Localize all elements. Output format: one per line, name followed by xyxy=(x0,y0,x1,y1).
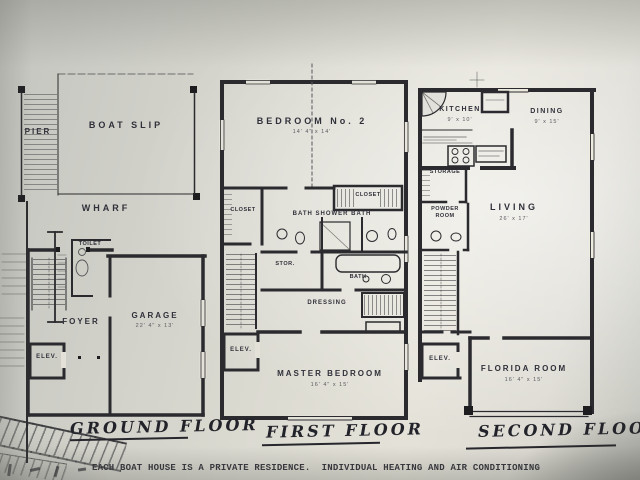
room-label-garage: GARAGE xyxy=(112,311,198,320)
room-dim-kitchen: 9' x 10' xyxy=(424,117,496,123)
room-label-toilet: TOILET xyxy=(68,241,112,247)
second-stairs-hatch xyxy=(424,255,456,331)
ground-stairs-hatch xyxy=(33,259,65,309)
room-label-master-bedroom: MASTER BEDROOM xyxy=(252,369,408,378)
pier-hatch xyxy=(24,94,57,194)
first-stairs-hatch xyxy=(226,254,255,328)
photo-caption: EACH BOAT HOUSE IS A PRIVATE RESIDENCE. … xyxy=(92,463,540,473)
ground-floor-title: GROUND FLOOR xyxy=(70,415,259,438)
first-closet-louver-hatch xyxy=(224,194,232,238)
room-label-dining: DINING xyxy=(516,108,578,115)
floorplan-linework xyxy=(0,0,640,480)
first-floor-title: FIRST FLOOR xyxy=(266,419,424,441)
room-label-powder-room: POWDER ROOM xyxy=(425,206,465,220)
room-label-bath-shower-bath: BATH SHOWER BATH xyxy=(258,211,406,217)
room-label-bath: BATH xyxy=(336,274,380,280)
floor-plan-photo: PIER BOAT SLIP WHARF TOILET FOYER GARAGE… xyxy=(0,0,640,480)
room-label-foyer: FOYER xyxy=(50,317,112,326)
room-dim-dining: 9' x 15' xyxy=(516,119,578,125)
room-label-pier: PIER xyxy=(18,127,58,136)
room-label-stor: STOR. xyxy=(264,261,306,267)
first-wardrobe-hatch xyxy=(364,295,402,315)
room-label-closet-middle: CLOSET xyxy=(336,192,400,198)
room-label-elevator-ground: ELEV. xyxy=(30,354,64,360)
room-label-bedroom2: BEDROOM No. 2 xyxy=(248,116,376,126)
room-label-living: LIVING xyxy=(478,202,550,212)
room-label-wharf: WHARF xyxy=(60,203,152,213)
room-label-florida-room: FLORIDA ROOM xyxy=(468,364,580,373)
room-dim-garage: 22' 4" x 13' xyxy=(112,323,198,329)
room-label-dressing: DRESSING xyxy=(286,300,368,306)
room-label-storage-second: STORAGE xyxy=(424,169,466,175)
room-dim-master-bedroom: 16' 4" x 15' xyxy=(252,382,408,388)
room-dim-living: 26' x 17' xyxy=(478,216,550,222)
room-label-elevator-second: ELEV. xyxy=(422,356,458,362)
room-dim-bedroom2: 14' 4" x 14' xyxy=(248,129,376,135)
room-label-elevator-first: ELEV. xyxy=(224,347,258,353)
room-label-kitchen: KITCHEN xyxy=(424,106,496,113)
room-dim-florida-room: 16' 4" x 15' xyxy=(468,377,580,383)
second-floor-title: SECOND FLOOR xyxy=(478,418,640,441)
room-label-boat-slip: BOAT SLIP xyxy=(70,120,182,130)
